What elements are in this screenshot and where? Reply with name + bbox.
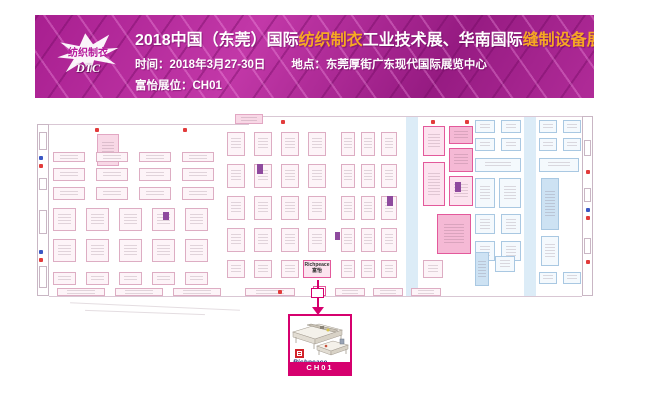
banner-title-segment: 纺织制衣 xyxy=(299,32,363,49)
banner-title-segment: 缝制设备展 xyxy=(523,32,594,49)
booth xyxy=(541,236,559,266)
booth xyxy=(335,288,365,296)
booth xyxy=(341,196,355,220)
booth xyxy=(475,158,521,172)
booth xyxy=(152,239,175,262)
booth xyxy=(539,272,557,284)
booth xyxy=(119,272,142,285)
hall-wall xyxy=(39,210,47,234)
booth xyxy=(539,138,557,151)
banner-booth-line: 富怡展位：CH01 xyxy=(135,77,222,93)
booth xyxy=(257,164,263,174)
booth xyxy=(182,168,214,181)
connector-entrance-box xyxy=(311,288,324,298)
booth xyxy=(423,126,445,156)
booth xyxy=(501,120,521,133)
walkway-line xyxy=(85,310,205,315)
booth xyxy=(139,152,171,162)
booth xyxy=(361,132,375,156)
event-banner: 纺织制衣 DTC 2018中国（东莞）国际纺织制衣工业技术展、华南国际缝制设备展… xyxy=(35,15,594,98)
aisle xyxy=(524,117,536,296)
booth xyxy=(475,138,495,151)
event-time: 时间：2018年3月27-30日 xyxy=(135,59,265,71)
door-marker-icon xyxy=(39,250,43,254)
booth xyxy=(245,288,295,296)
hall-wall xyxy=(39,178,47,190)
logo-dtc-text: DTC xyxy=(55,61,121,76)
booth-callout-card: Richpeace CH01 xyxy=(288,314,352,376)
booth xyxy=(563,120,581,133)
booth xyxy=(152,272,175,285)
booth xyxy=(563,272,581,284)
door-marker-icon xyxy=(183,128,187,132)
booth xyxy=(563,138,581,151)
booth xyxy=(361,164,375,188)
booth xyxy=(227,132,245,156)
booth xyxy=(499,178,521,208)
banner-title-segment: 2018中国（东莞）国际 xyxy=(135,32,299,49)
booth xyxy=(501,214,521,234)
hall-wall xyxy=(584,238,591,254)
booth xyxy=(53,239,76,262)
booth xyxy=(235,114,263,124)
booth xyxy=(373,288,403,296)
booth xyxy=(308,164,326,188)
booth xyxy=(53,187,85,200)
booth xyxy=(281,228,299,252)
booth xyxy=(281,132,299,156)
booth xyxy=(227,260,245,278)
booth xyxy=(449,176,473,206)
booth xyxy=(86,208,109,231)
hall-wall xyxy=(584,140,591,156)
aisle xyxy=(406,117,418,296)
booth xyxy=(96,168,128,181)
booth xyxy=(185,239,208,262)
booth xyxy=(381,228,397,252)
booth xyxy=(227,228,245,252)
booth xyxy=(341,260,355,278)
door-marker-icon xyxy=(465,120,469,124)
door-marker-icon xyxy=(586,208,590,212)
booth xyxy=(495,256,515,272)
booth xyxy=(173,288,221,296)
booth xyxy=(423,260,443,278)
booth xyxy=(281,196,299,220)
door-marker-icon xyxy=(586,260,590,264)
booth xyxy=(541,178,559,230)
booth xyxy=(455,182,461,192)
booth xyxy=(254,196,272,220)
booth xyxy=(341,164,355,188)
door-marker-icon xyxy=(39,258,43,262)
door-marker-icon xyxy=(39,164,43,168)
richpeace-booth-label-cn: 富怡 xyxy=(312,269,322,275)
booth xyxy=(411,288,441,296)
booth xyxy=(381,260,397,278)
booth xyxy=(341,228,355,252)
hall-boundary xyxy=(49,124,249,125)
booth xyxy=(423,162,445,206)
booth xyxy=(254,132,272,156)
booth xyxy=(539,120,557,133)
booth xyxy=(119,239,142,262)
booth xyxy=(86,272,109,285)
banner-info-line: 时间：2018年3月27-30日地点：东莞厚街广东现代国际展览中心 xyxy=(135,56,487,72)
booth xyxy=(281,164,299,188)
booth xyxy=(96,152,128,162)
booth xyxy=(381,132,397,156)
booth-number-bar: CH01 xyxy=(290,362,350,374)
booth xyxy=(115,288,163,296)
richpeace-logo-icon xyxy=(295,349,304,358)
door-marker-icon xyxy=(278,290,282,294)
booth xyxy=(361,260,375,278)
booth xyxy=(53,152,85,162)
booth xyxy=(308,132,326,156)
booth xyxy=(139,187,171,200)
booth xyxy=(437,214,471,254)
booth xyxy=(182,152,214,162)
booth xyxy=(539,158,579,172)
booth xyxy=(53,272,76,285)
door-marker-icon xyxy=(586,216,590,220)
booth xyxy=(96,187,128,200)
logo-chinese-text: 纺织制衣 xyxy=(55,44,121,59)
booth xyxy=(449,148,473,172)
booth xyxy=(185,208,208,231)
door-marker-icon xyxy=(39,156,43,160)
booth xyxy=(185,272,208,285)
banner-title-segment: 工业技术展、华南国际 xyxy=(363,32,523,49)
booth xyxy=(361,196,375,220)
booth xyxy=(449,126,473,144)
dtc-logo: 纺织制衣 DTC xyxy=(55,31,121,85)
booth xyxy=(308,228,326,252)
booth xyxy=(361,228,375,252)
hall-wall xyxy=(584,188,591,202)
booth xyxy=(57,288,105,296)
door-marker-icon xyxy=(431,120,435,124)
floor-map: Richpeace富怡 xyxy=(35,112,594,304)
booth xyxy=(381,164,397,188)
booth xyxy=(254,228,272,252)
booth xyxy=(475,178,495,208)
hall-wall xyxy=(39,266,47,288)
booth xyxy=(53,168,85,181)
booth xyxy=(254,260,272,278)
booth xyxy=(119,208,142,231)
page: 纺织制衣 DTC 2018中国（东莞）国际纺织制衣工业技术展、华南国际缝制设备展… xyxy=(0,0,648,415)
booth xyxy=(335,232,340,240)
booth xyxy=(387,196,393,206)
booth xyxy=(501,138,521,151)
booth xyxy=(53,208,76,231)
event-place: 地点：东莞厚街广东现代国际展览中心 xyxy=(291,59,487,71)
booth xyxy=(475,252,489,286)
richpeace-booth: Richpeace富怡 xyxy=(303,260,331,278)
booth xyxy=(281,260,299,278)
door-marker-icon xyxy=(95,128,99,132)
booth xyxy=(86,239,109,262)
booth xyxy=(163,212,169,220)
booth xyxy=(475,120,495,133)
door-marker-icon xyxy=(281,120,285,124)
booth xyxy=(139,168,171,181)
booth xyxy=(308,196,326,220)
booth xyxy=(227,164,245,188)
banner-title: 2018中国（东莞）国际纺织制衣工业技术展、华南国际缝制设备展 xyxy=(135,26,594,50)
booth xyxy=(475,214,495,234)
booth xyxy=(341,132,355,156)
door-marker-icon xyxy=(586,170,590,174)
hall-wall xyxy=(39,132,47,150)
booth xyxy=(227,196,245,220)
booth xyxy=(182,187,214,200)
